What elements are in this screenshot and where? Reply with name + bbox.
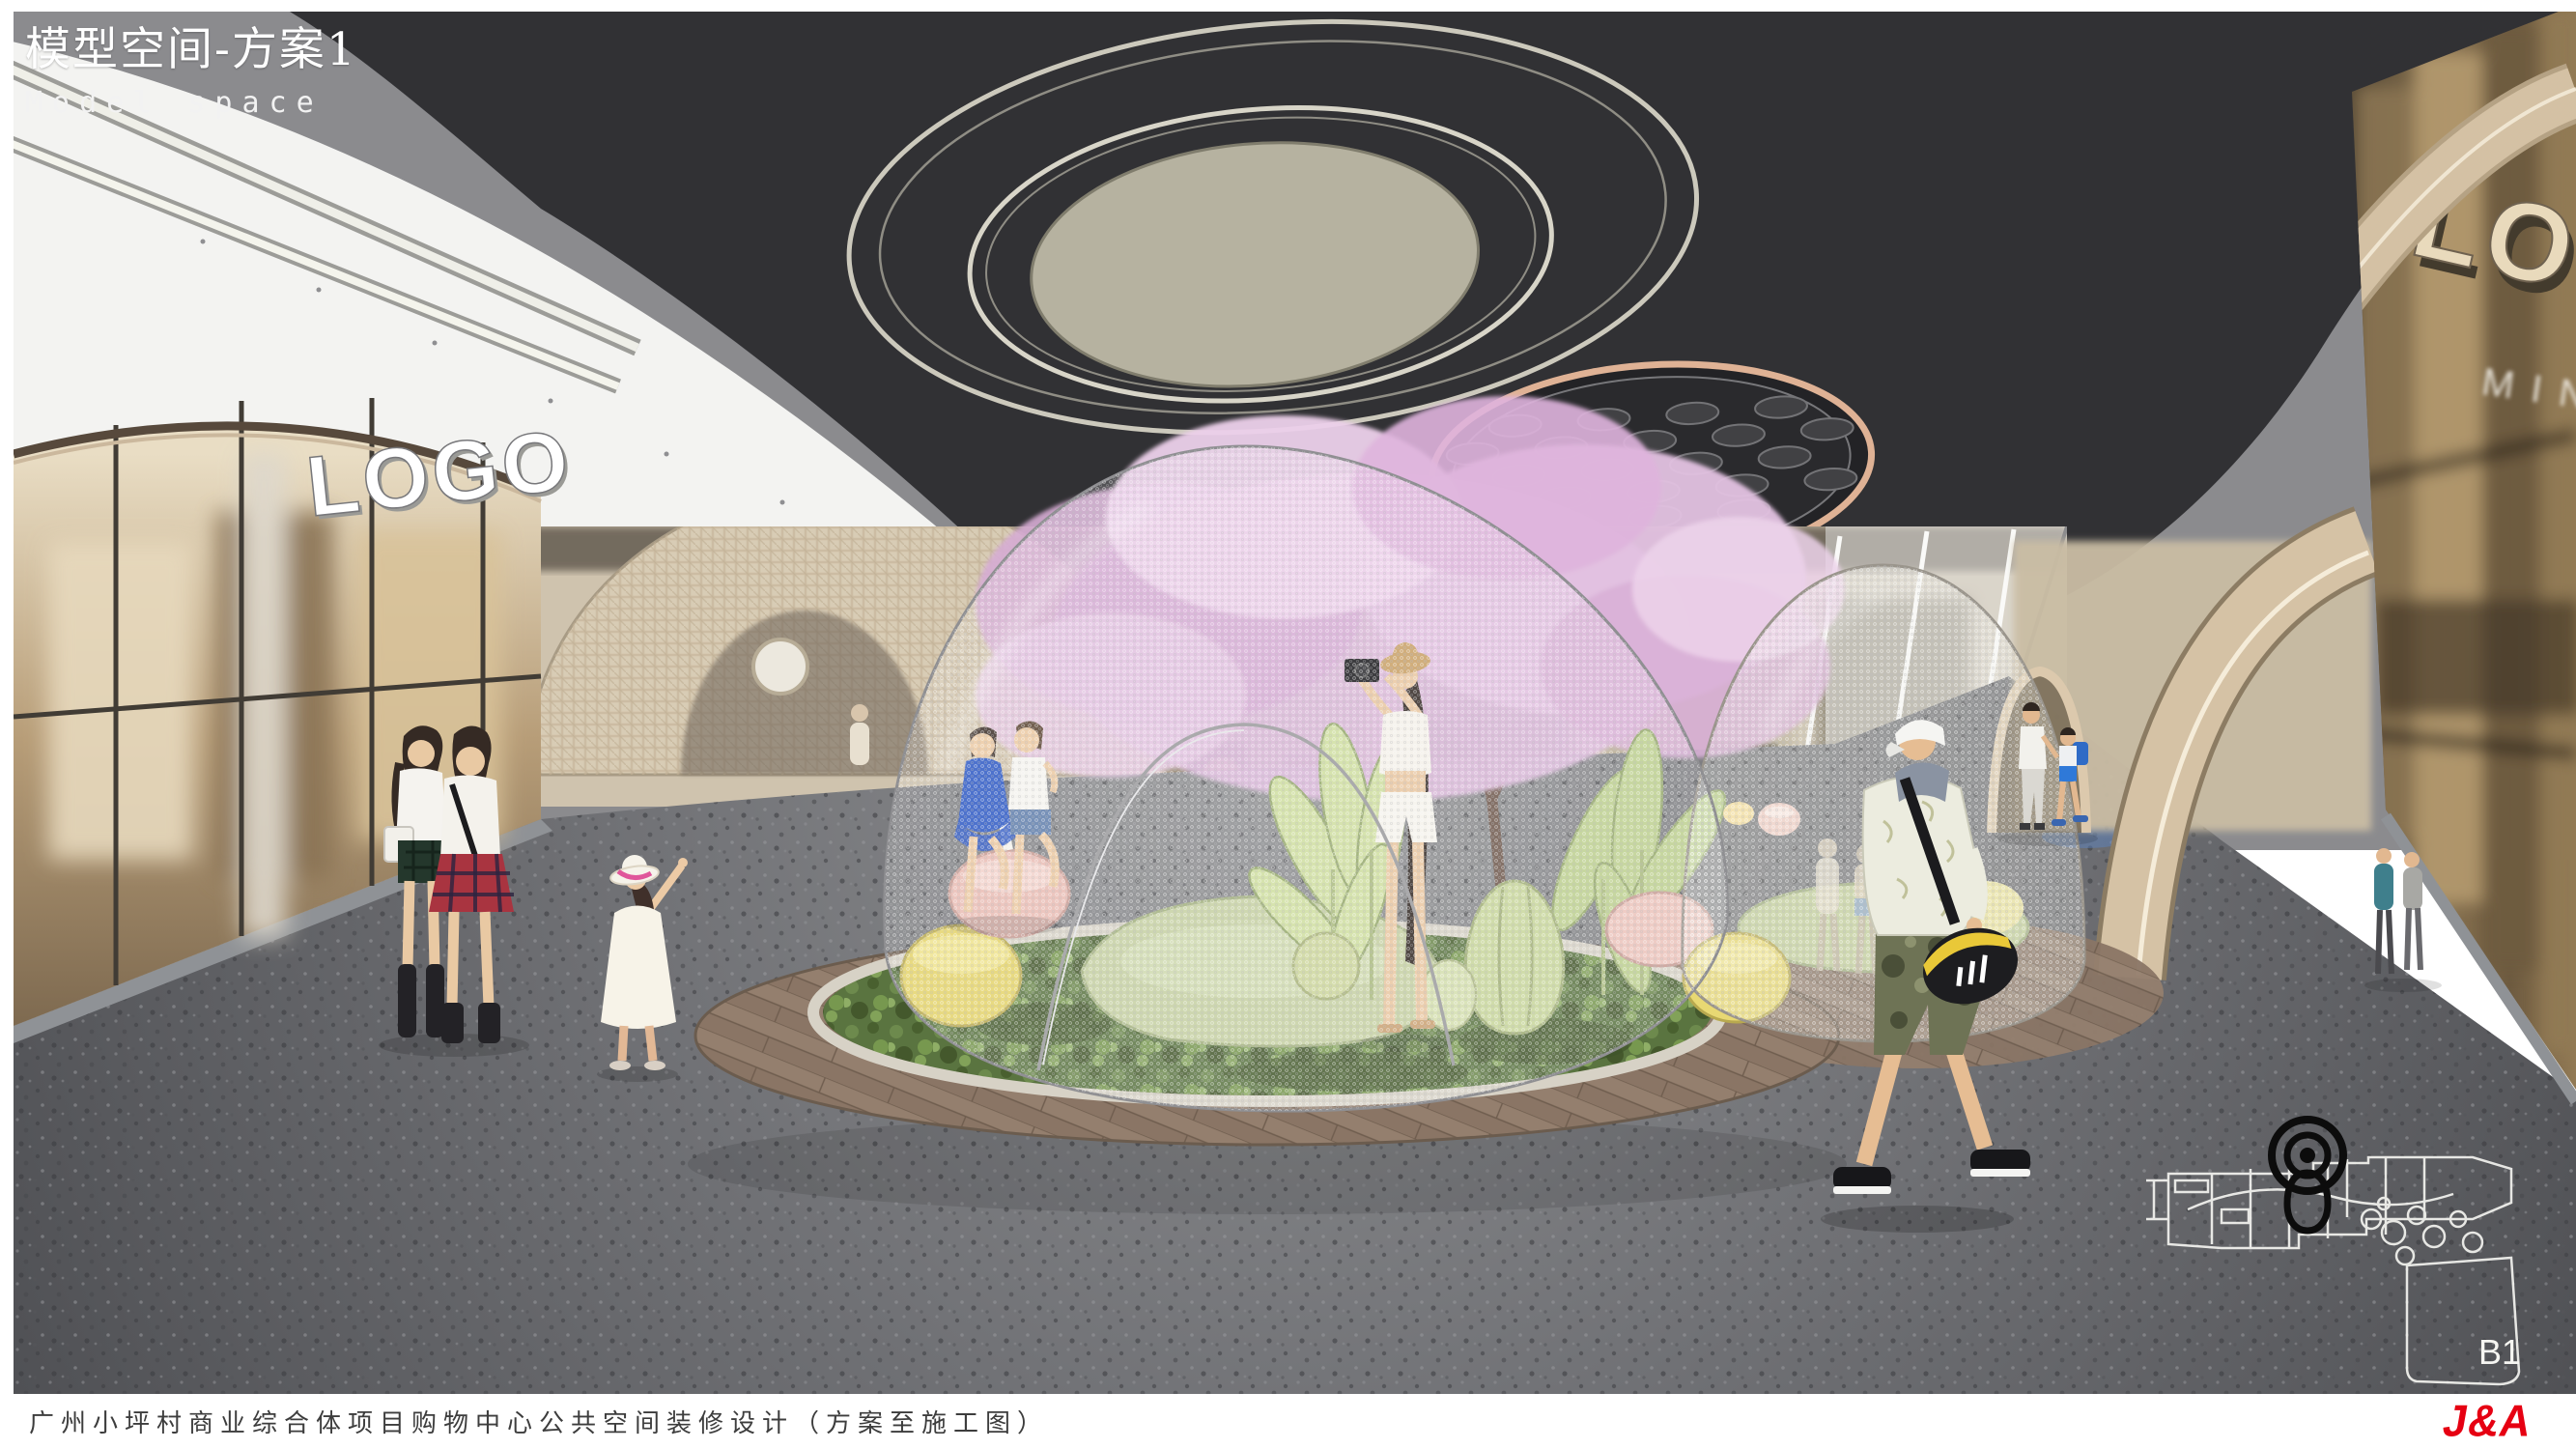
page-title: 模型空间-方案1 <box>25 12 357 78</box>
ja-brand-logo: J&A <box>2439 1396 2535 1447</box>
rendering-view: LOGO LOGO <box>0 0 2576 1394</box>
cafe-sign <box>753 639 807 694</box>
page-margin-left <box>0 0 14 1394</box>
title-block: 模型空间-方案1 Model space <box>25 12 357 120</box>
person-cafe-distant <box>850 704 869 765</box>
presentation-slide: LOGO LOGO <box>0 0 2576 1449</box>
page-margin-top <box>0 0 2576 12</box>
hoodie <box>1863 776 1979 935</box>
floor-plan-level-label: B1 <box>2478 1332 2521 1372</box>
footer: 广州小坪村商业综合体项目购物中心公共空间装修设计（方案至施工图） J&A <box>0 1394 2576 1449</box>
mall-rendering: LOGO LOGO <box>0 0 2576 1394</box>
footer-caption: 广州小坪村商业综合体项目购物中心公共空间装修设计（方案至施工图） <box>29 1404 1049 1439</box>
page-subtitle: Model space <box>25 86 357 120</box>
